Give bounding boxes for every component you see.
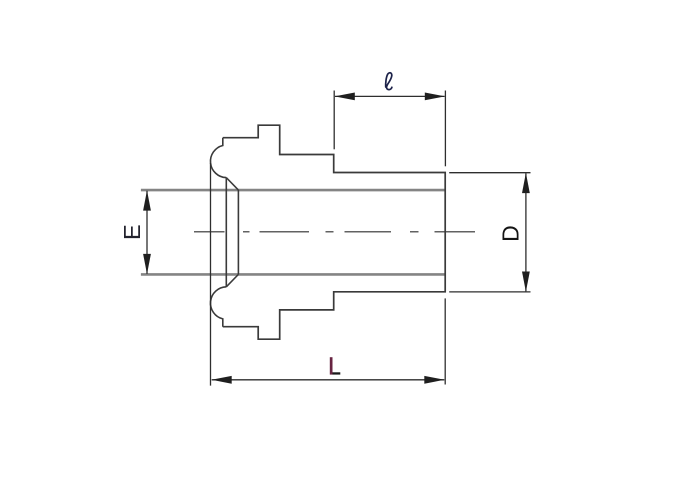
svg-text:E: E xyxy=(119,224,145,240)
svg-text:D: D xyxy=(497,225,523,242)
